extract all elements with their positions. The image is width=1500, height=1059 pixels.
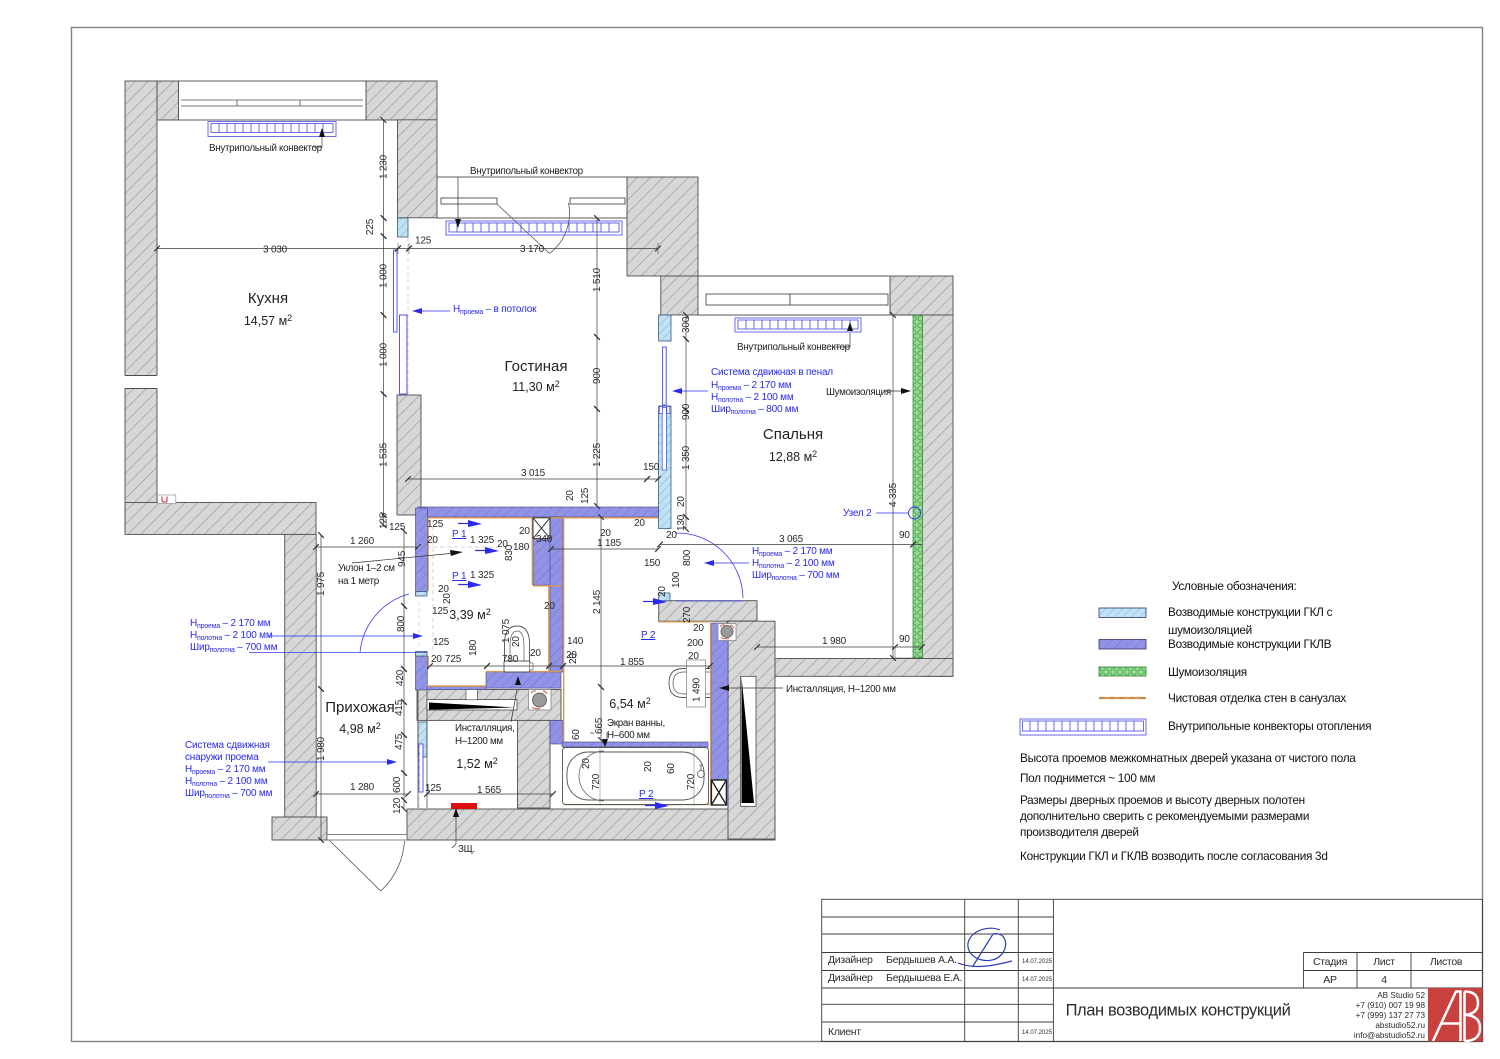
svg-text:20: 20	[688, 651, 699, 662]
svg-text:415: 415	[394, 699, 405, 716]
svg-text:60: 60	[666, 763, 677, 774]
svg-text:130: 130	[676, 514, 687, 531]
svg-text:1 280: 1 280	[350, 782, 375, 793]
svg-text:20: 20	[530, 648, 541, 659]
svg-text:1 975: 1 975	[316, 571, 327, 596]
svg-text:20: 20	[657, 586, 668, 597]
svg-text:1 980: 1 980	[316, 736, 327, 761]
svg-text:125: 125	[580, 487, 591, 504]
svg-text:3 065: 3 065	[779, 534, 804, 545]
svg-text:20: 20	[427, 535, 438, 546]
svg-text:1 000: 1 000	[379, 263, 390, 288]
svg-text:125: 125	[415, 236, 432, 247]
svg-text:abstudio52.ru: abstudio52.ru	[1375, 1021, 1425, 1030]
svg-text:Уклон 1–2 см: Уклон 1–2 см	[338, 563, 395, 574]
svg-text:20: 20	[634, 518, 645, 529]
svg-text:Кухня: Кухня	[248, 290, 288, 307]
svg-text:2 145: 2 145	[592, 589, 603, 614]
svg-text:Ширполотна – 700 мм: Ширполотна – 700 мм	[185, 788, 273, 800]
svg-text:475: 475	[394, 733, 405, 750]
svg-text:План возводимых конструкций: План возводимых конструкций	[1066, 1002, 1291, 1020]
svg-text:Стадия: Стадия	[1313, 956, 1347, 968]
svg-text:1,52 м2: 1,52 м2	[456, 756, 497, 771]
svg-text:AB Studio 52: AB Studio 52	[1377, 991, 1425, 1000]
svg-text:20: 20	[643, 761, 654, 772]
svg-text:1 325: 1 325	[470, 570, 495, 581]
svg-text:1 350: 1 350	[681, 445, 692, 470]
svg-text:Бердышева Е.А.: Бердышева Е.А.	[886, 972, 962, 984]
svg-text:Высота проемов межкомнатных дв: Высота проемов межкомнатных дверей указа…	[1020, 751, 1356, 765]
svg-text:4 335: 4 335	[888, 482, 899, 507]
svg-text:Р 1: Р 1	[452, 571, 467, 582]
svg-text:800: 800	[682, 549, 693, 566]
svg-text:info@abstudio52.ru: info@abstudio52.ru	[1354, 1031, 1426, 1040]
svg-text:3 170: 3 170	[520, 244, 545, 255]
svg-text:Шумоизоляция: Шумоизоляция	[826, 387, 891, 398]
svg-text:1 490: 1 490	[692, 677, 703, 702]
svg-text:830: 830	[504, 544, 515, 561]
svg-text:Клиент: Клиент	[828, 1026, 861, 1038]
svg-text:Лист: Лист	[1373, 956, 1395, 968]
svg-text:340: 340	[536, 534, 553, 545]
svg-text:125: 125	[432, 606, 449, 617]
svg-text:14.07.2025: 14.07.2025	[1022, 959, 1053, 965]
svg-text:1 855: 1 855	[620, 657, 645, 668]
svg-text:снаружи проема: снаружи проема	[185, 752, 259, 763]
svg-text:Бердышев А.А.: Бердышев А.А.	[886, 954, 957, 966]
svg-text:3 015: 3 015	[521, 468, 546, 479]
svg-text:Размеры дверных проемов и высо: Размеры дверных проемов и высоту дверных…	[1020, 793, 1305, 807]
svg-text:60: 60	[571, 729, 582, 740]
svg-text:20: 20	[676, 496, 687, 507]
svg-text:20: 20	[565, 490, 576, 501]
svg-text:720: 720	[686, 773, 697, 790]
svg-text:1 000: 1 000	[379, 342, 390, 367]
svg-text:800: 800	[396, 615, 407, 632]
svg-text:140: 140	[567, 636, 584, 647]
svg-text:Ширполотна – 700 мм: Ширполотна – 700 мм	[752, 570, 840, 582]
svg-text:Система сдвижная в пенал: Система сдвижная в пенал	[711, 367, 833, 378]
svg-text:4,98 м2: 4,98 м2	[339, 721, 380, 736]
svg-text:1 225: 1 225	[592, 442, 603, 467]
svg-text:125: 125	[433, 637, 450, 648]
svg-text:200: 200	[687, 638, 704, 649]
svg-text:+7 (999) 137 27 73: +7 (999) 137 27 73	[1356, 1011, 1426, 1020]
svg-text:Прихожая: Прихожая	[325, 699, 395, 716]
svg-text:150: 150	[644, 558, 661, 569]
svg-text:900: 900	[592, 367, 603, 384]
svg-text:Условные обозначения:: Условные обозначения:	[1172, 579, 1296, 593]
svg-text:725: 725	[445, 654, 462, 665]
svg-text:Экран ванны,: Экран ванны,	[607, 718, 665, 729]
svg-text:1 510: 1 510	[592, 267, 603, 292]
svg-text:20: 20	[431, 654, 442, 665]
svg-text:180: 180	[513, 542, 530, 553]
svg-text:Возводимые конструкции ГКЛВ: Возводимые конструкции ГКЛВ	[1168, 637, 1332, 651]
svg-text:14.07.2025: 14.07.2025	[1022, 1030, 1053, 1036]
svg-text:14,57 м2: 14,57 м2	[244, 313, 292, 328]
svg-text:Чистовая отделка стен в санузл: Чистовая отделка стен в санузлах	[1168, 691, 1346, 705]
svg-text:Гостиная: Гостиная	[505, 358, 568, 375]
svg-text:Листов: Листов	[1430, 956, 1463, 968]
svg-text:1 535: 1 535	[379, 442, 390, 467]
svg-text:120: 120	[392, 797, 403, 814]
svg-text:100: 100	[671, 571, 682, 588]
svg-text:производителя дверей: производителя дверей	[1020, 825, 1139, 839]
svg-text:20: 20	[519, 526, 530, 537]
svg-text:90: 90	[899, 634, 910, 645]
svg-text:АР: АР	[1323, 974, 1337, 986]
svg-text:20: 20	[544, 601, 555, 612]
svg-text:20: 20	[600, 528, 611, 539]
svg-text:900: 900	[681, 403, 692, 420]
svg-text:Р 2: Р 2	[639, 789, 654, 800]
svg-text:Р 1: Р 1	[452, 529, 467, 540]
svg-text:Спальня: Спальня	[763, 426, 823, 443]
svg-text:+7 (910) 007 19 98: +7 (910) 007 19 98	[1356, 1001, 1426, 1010]
svg-text:720: 720	[591, 773, 602, 790]
svg-text:180: 180	[468, 639, 479, 656]
svg-text:150: 150	[643, 462, 660, 473]
svg-text:Пол поднимется ~ 100 мм: Пол поднимется ~ 100 мм	[1020, 771, 1155, 785]
svg-text:90: 90	[899, 530, 910, 541]
svg-text:665: 665	[594, 717, 605, 734]
svg-text:14.07.2025: 14.07.2025	[1022, 977, 1053, 983]
svg-text:Р 2: Р 2	[641, 630, 656, 641]
svg-text:1 980: 1 980	[822, 636, 847, 647]
svg-text:270: 270	[682, 606, 693, 623]
svg-text:20: 20	[581, 758, 592, 769]
svg-text:125: 125	[425, 783, 442, 794]
svg-text:125: 125	[379, 512, 390, 529]
svg-text:20: 20	[511, 636, 522, 647]
svg-text:Дизайнер: Дизайнер	[828, 972, 873, 984]
svg-text:Шумоизоляция: Шумоизоляция	[1168, 665, 1247, 679]
svg-text:1 185: 1 185	[597, 538, 622, 549]
svg-text:1 325: 1 325	[470, 535, 495, 546]
svg-text:Внутрипольный конвектор: Внутрипольный конвектор	[737, 342, 851, 353]
svg-text:дополнительно сверить с рекоме: дополнительно сверить с рекомендуемыми р…	[1020, 809, 1309, 823]
svg-text:20: 20	[442, 593, 453, 604]
svg-text:125: 125	[389, 522, 406, 533]
svg-text:Ширполотна – 700 мм: Ширполотна – 700 мм	[190, 642, 278, 654]
svg-text:Н–1200 мм: Н–1200 мм	[455, 736, 503, 747]
svg-text:600: 600	[392, 776, 403, 793]
svg-text:11,30 м2: 11,30 м2	[512, 379, 559, 394]
svg-text:225: 225	[365, 218, 376, 235]
svg-text:Внутрипольный конвектор: Внутрипольный конвектор	[470, 166, 584, 177]
svg-text:780: 780	[502, 654, 519, 665]
svg-text:420: 420	[395, 669, 406, 686]
svg-text:20: 20	[568, 653, 579, 664]
svg-text:Инсталляция,: Инсталляция,	[455, 723, 514, 734]
svg-text:6,54 м2: 6,54 м2	[609, 696, 650, 711]
svg-text:на 1 метр: на 1 метр	[338, 576, 380, 587]
svg-text:Конструкции ГКЛ и ГКЛВ возводи: Конструкции ГКЛ и ГКЛВ возводить после с…	[1020, 849, 1328, 863]
svg-text:Н–600 мм: Н–600 мм	[607, 730, 650, 741]
svg-text:300: 300	[681, 316, 692, 333]
svg-text:Ширполотна – 800 мм: Ширполотна – 800 мм	[711, 404, 799, 416]
svg-text:20: 20	[693, 623, 704, 634]
svg-text:3,39 м2: 3,39 м2	[449, 607, 490, 622]
svg-text:Внутрипольный конвектор: Внутрипольный конвектор	[209, 143, 323, 154]
svg-text:4: 4	[1381, 974, 1387, 986]
svg-text:3 030: 3 030	[263, 245, 288, 256]
svg-text:Инсталляция, Н–1200 мм: Инсталляция, Н–1200 мм	[786, 684, 896, 695]
svg-text:12,88 м2: 12,88 м2	[769, 449, 817, 464]
svg-text:шумоизоляцией: шумоизоляцией	[1168, 623, 1252, 637]
svg-text:Внутрипольные конвекторы отопл: Внутрипольные конвекторы отопления	[1168, 719, 1371, 733]
svg-text:Узел 2: Узел 2	[843, 508, 872, 519]
svg-text:ЗЩ.: ЗЩ.	[458, 844, 475, 855]
svg-text:Система сдвижная: Система сдвижная	[185, 740, 270, 751]
svg-text:1 260: 1 260	[350, 536, 375, 547]
svg-text:1 230: 1 230	[379, 154, 390, 179]
svg-text:Дизайнер: Дизайнер	[828, 954, 873, 966]
svg-text:125: 125	[427, 519, 444, 530]
svg-text:Возводимые конструкции ГКЛ с: Возводимые конструкции ГКЛ с	[1168, 605, 1333, 619]
svg-text:1 565: 1 565	[477, 785, 502, 796]
